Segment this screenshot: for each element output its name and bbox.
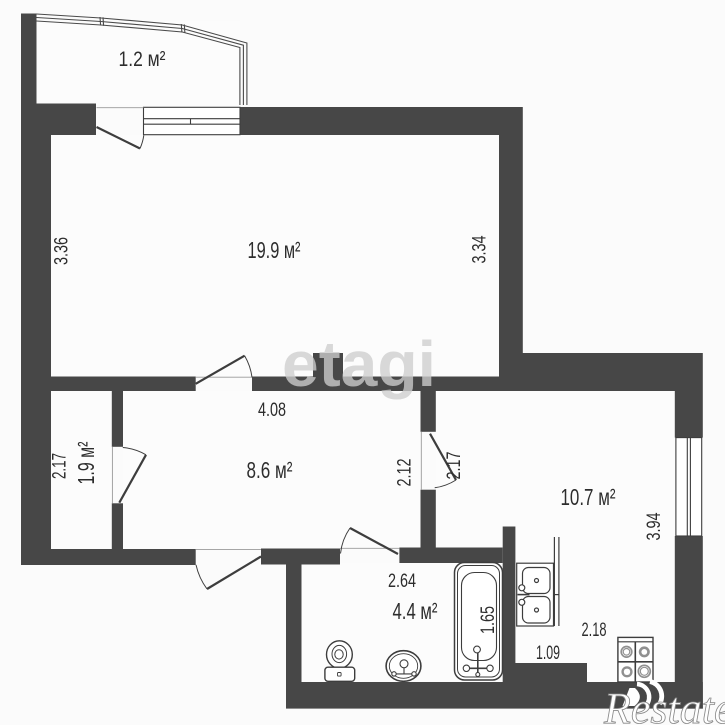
- svg-text:10.7 м²: 10.7 м²: [561, 484, 616, 510]
- svg-text:8.6 м²: 8.6 м²: [247, 457, 293, 483]
- svg-text:1.65: 1.65: [478, 606, 499, 634]
- svg-text:3.36: 3.36: [52, 237, 73, 265]
- svg-text:4.08: 4.08: [258, 400, 286, 421]
- svg-text:2.18: 2.18: [582, 620, 607, 641]
- svg-text:3.34: 3.34: [470, 235, 491, 263]
- svg-text:1.9 м²: 1.9 м²: [73, 441, 99, 484]
- svg-text:2.12: 2.12: [395, 459, 416, 487]
- svg-text:etagi: etagi: [282, 328, 436, 400]
- svg-text:3.94: 3.94: [644, 512, 665, 540]
- svg-text:Restate: Restate: [603, 684, 725, 725]
- svg-text:2.17: 2.17: [444, 452, 465, 480]
- svg-text:1.09: 1.09: [536, 643, 560, 664]
- svg-text:19.9 м²: 19.9 м²: [248, 237, 301, 263]
- svg-text:2.64: 2.64: [388, 571, 416, 592]
- svg-text:1.2 м²: 1.2 м²: [119, 48, 166, 71]
- svg-text:2.17: 2.17: [50, 453, 71, 479]
- svg-text:4.4 м²: 4.4 м²: [393, 598, 438, 624]
